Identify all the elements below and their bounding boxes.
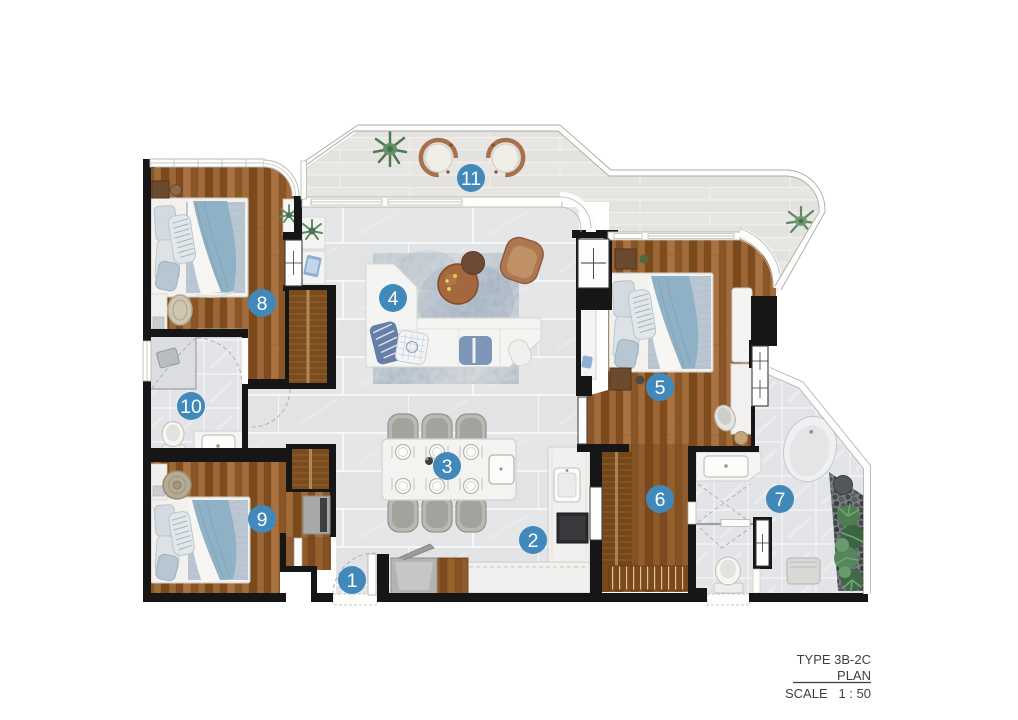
- svg-text:5: 5: [655, 377, 666, 399]
- svg-text:11: 11: [461, 168, 481, 190]
- svg-text:4: 4: [388, 288, 399, 310]
- svg-text:TYPE 3B-2C: TYPE 3B-2C: [797, 652, 871, 667]
- svg-text:9: 9: [257, 509, 268, 531]
- svg-text:1: 1: [347, 570, 358, 592]
- svg-text:PLAN: PLAN: [837, 668, 871, 683]
- svg-text:SCALE 1 : 50: SCALE 1 : 50: [785, 686, 871, 701]
- svg-text:6: 6: [655, 489, 666, 511]
- svg-text:2: 2: [528, 530, 539, 552]
- svg-text:3: 3: [442, 456, 453, 478]
- svg-text:7: 7: [775, 489, 786, 511]
- svg-text:8: 8: [257, 293, 268, 315]
- svg-text:10: 10: [180, 396, 202, 418]
